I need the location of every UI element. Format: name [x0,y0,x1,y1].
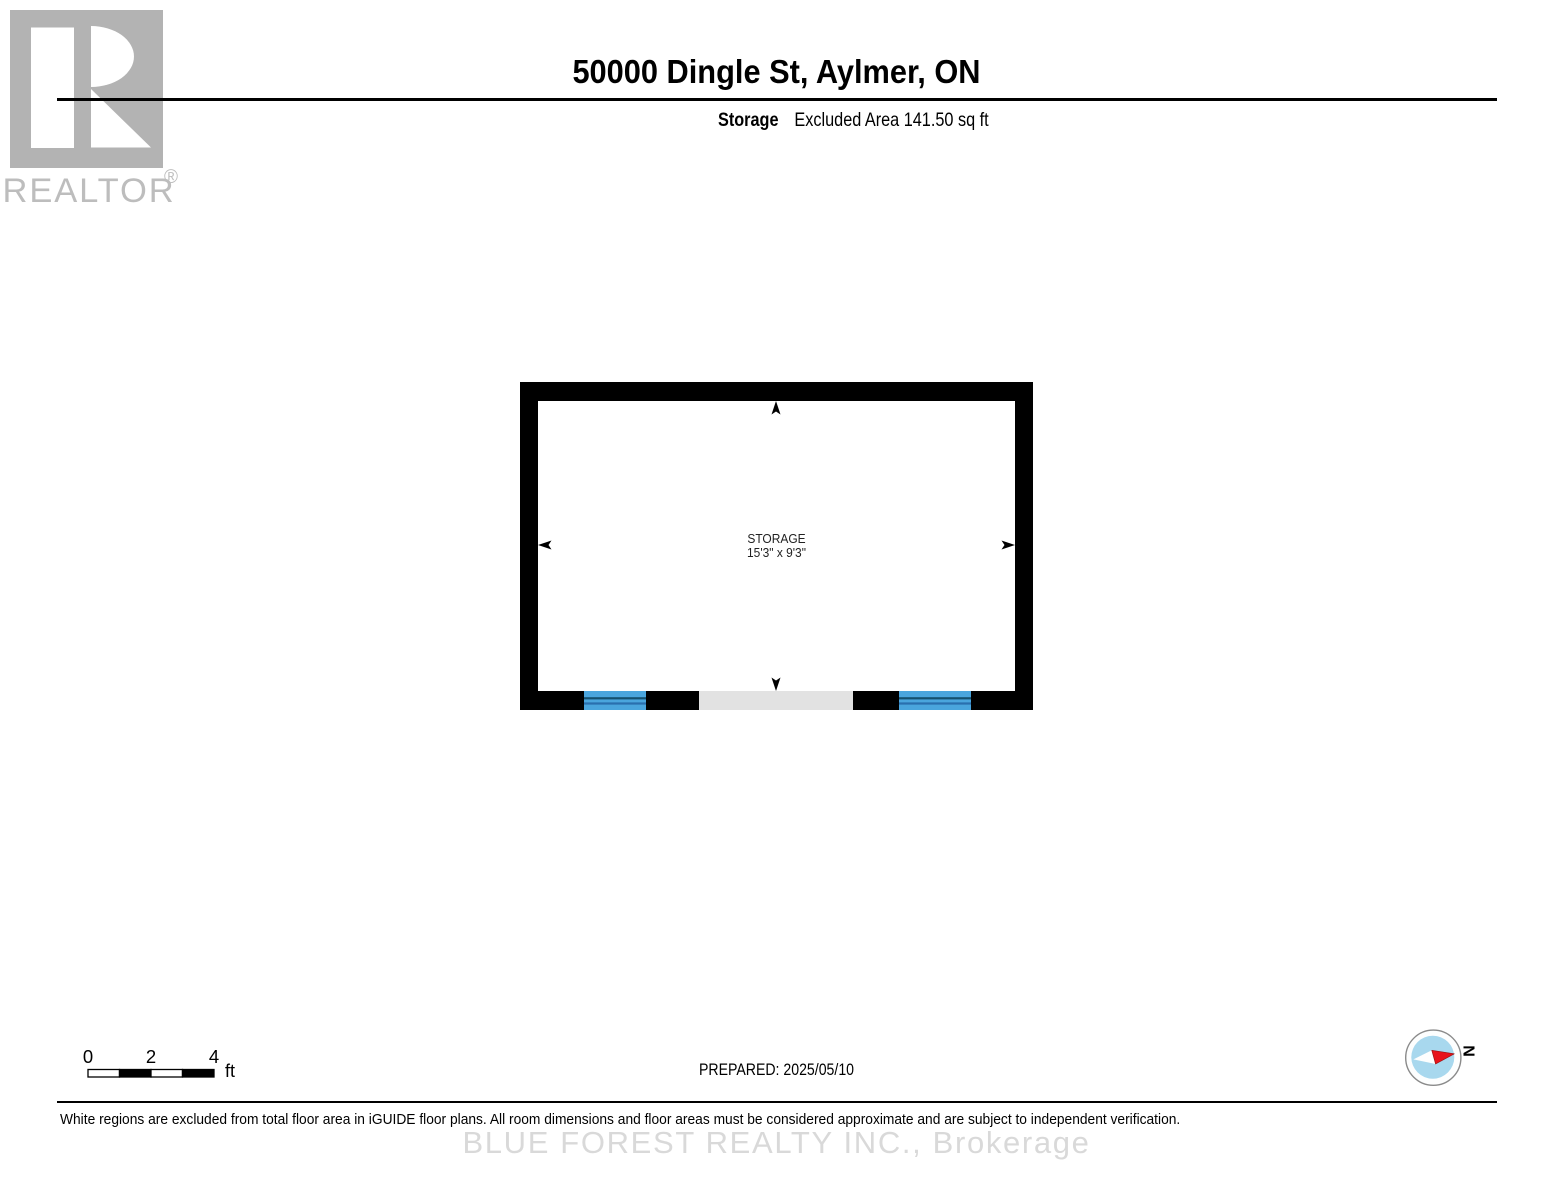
svg-text:N: N [1460,1045,1477,1057]
svg-text:0: 0 [83,1046,93,1067]
